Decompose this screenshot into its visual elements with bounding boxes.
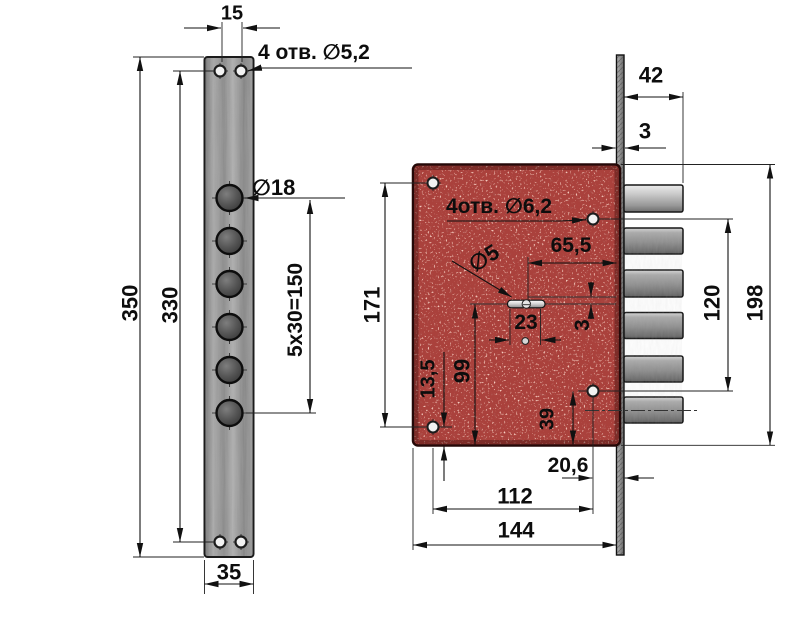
small-pin-hole	[522, 338, 529, 345]
dim-label-20-6: 20,6	[548, 455, 589, 477]
dim-label-35: 35	[217, 560, 241, 583]
dim-label-15: 15	[221, 4, 243, 25]
dim-label-dia18: ∅18	[252, 176, 295, 199]
lock-bolts	[624, 185, 683, 424]
holes-note-left: 4 отв. ∅5,2	[258, 42, 370, 64]
brushed-texture	[205, 58, 253, 556]
dim-label-65-5: 65,5	[551, 235, 592, 257]
dim-label-171: 171	[360, 287, 383, 324]
dim-label-350: 350	[118, 285, 141, 322]
latch-bolt	[624, 185, 683, 212]
dim-label-3-mid: 3	[572, 319, 594, 331]
dim-label-3-top: 3	[639, 119, 651, 142]
dim-label-39: 39	[538, 408, 559, 430]
dim-label-144: 144	[498, 518, 535, 541]
dim-label-198: 198	[743, 285, 766, 322]
dim-label-112: 112	[497, 484, 533, 507]
dim-label-120: 120	[700, 285, 723, 322]
dim-label-42: 42	[639, 63, 663, 86]
bolt-texture	[625, 229, 682, 424]
dim-label-13-5: 13,5	[419, 360, 440, 399]
dim-label-23: 23	[514, 312, 537, 334]
holes-note-right: 4отв. ∅6,2	[446, 196, 552, 218]
engineering-drawing-page: 15 4 отв. ∅5,2 ∅18 5x30=150 350 330 35 4…	[0, 0, 800, 618]
dim-label-pitch: 5x30=150	[285, 263, 307, 357]
dim-label-330: 330	[158, 287, 181, 324]
dim-label-99: 99	[450, 359, 473, 383]
